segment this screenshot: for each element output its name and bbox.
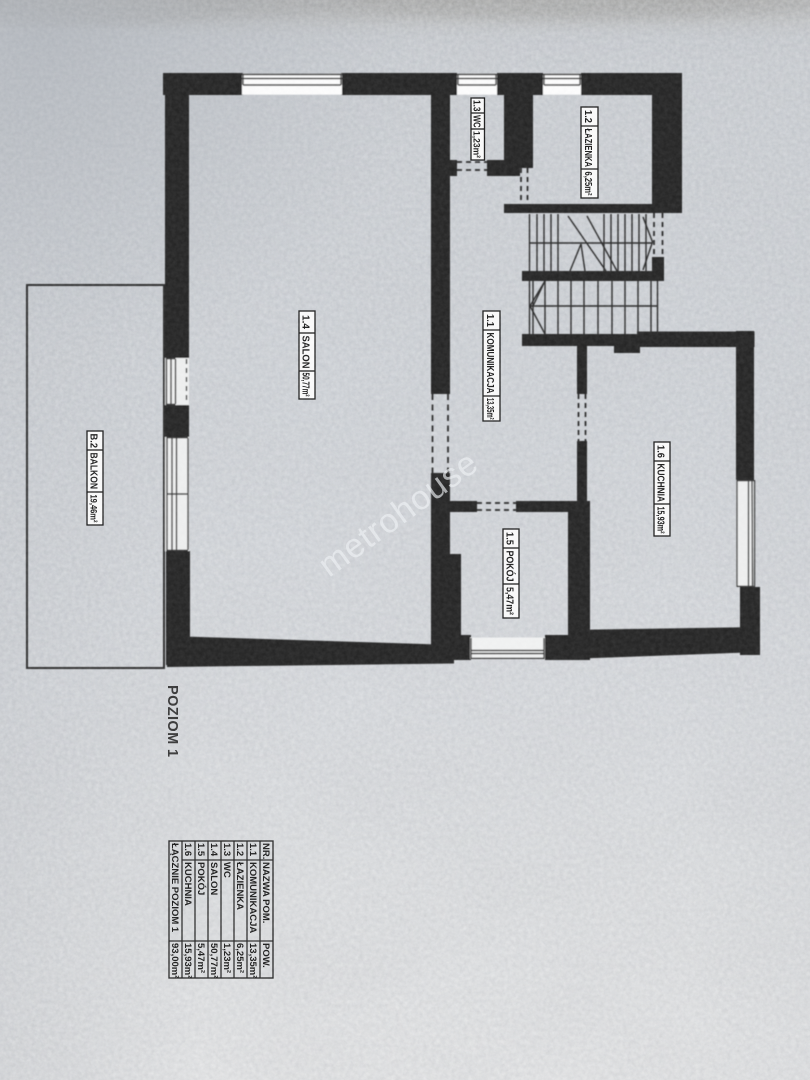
svg-text:POKÓJ: POKÓJ [504,551,517,582]
svg-text:1.6: 1.6 [182,843,193,856]
svg-text:1.6: 1.6 [655,445,667,458]
svg-text:SALON: SALON [208,862,219,895]
svg-text:POW.: POW. [260,943,271,968]
svg-text:6,25m²: 6,25m² [582,172,593,197]
svg-text:1.3: 1.3 [221,843,232,856]
svg-text:B.2: B.2 [88,434,99,449]
svg-text:13,35m²: 13,35m² [247,943,258,978]
svg-text:19,46m²: 19,46m² [88,495,99,523]
svg-text:50,77m²: 50,77m² [300,373,311,397]
svg-text:15,93m²: 15,93m² [182,943,193,978]
svg-text:1.2: 1.2 [234,843,245,856]
svg-text:NAZWA POM.: NAZWA POM. [260,862,271,923]
svg-text:5,47m²: 5,47m² [195,943,206,973]
svg-text:WC: WC [471,115,482,128]
svg-text:ŁAZIENKA: ŁAZIENKA [582,129,594,168]
svg-text:KUCHNIA: KUCHNIA [182,862,193,906]
svg-text:50,77m²: 50,77m² [208,943,219,978]
svg-text:NR.: NR. [260,843,271,859]
svg-text:6,25m²: 6,25m² [234,943,245,973]
svg-text:15,93m²: 15,93m² [655,507,666,534]
svg-text:1.2: 1.2 [582,110,594,123]
svg-text:13,35m²: 13,35m² [484,398,495,420]
svg-text:BALKON: BALKON [88,453,99,490]
svg-text:1,23m²: 1,23m² [221,943,232,973]
svg-text:WC: WC [221,862,232,878]
svg-text:SALON: SALON [300,336,312,369]
svg-text:1.1: 1.1 [484,314,496,327]
svg-text:1.3: 1.3 [471,100,482,112]
svg-text:KUCHNIA: KUCHNIA [655,464,667,503]
svg-text:ŁAZIENKA: ŁAZIENKA [234,862,245,910]
svg-text:ŁĄCZNIE POZIOM 1: ŁĄCZNIE POZIOM 1 [169,843,180,933]
svg-text:KOMUNIKACJA: KOMUNIKACJA [247,862,258,933]
svg-text:1.5: 1.5 [504,532,516,545]
svg-text:KOMUNIKACJA: KOMUNIKACJA [484,333,496,394]
svg-text:POZIOM 1: POZIOM 1 [164,685,180,758]
svg-text:5,47m²: 5,47m² [504,587,515,616]
svg-text:1.1: 1.1 [247,843,258,857]
svg-text:1.4: 1.4 [300,315,312,329]
svg-text:1.5: 1.5 [195,843,206,857]
svg-text:1.4: 1.4 [208,843,219,857]
svg-text:POKÓJ: POKÓJ [195,862,207,895]
svg-text:93,00m²: 93,00m² [169,943,180,978]
svg-text:1,23m²: 1,23m² [471,131,482,158]
